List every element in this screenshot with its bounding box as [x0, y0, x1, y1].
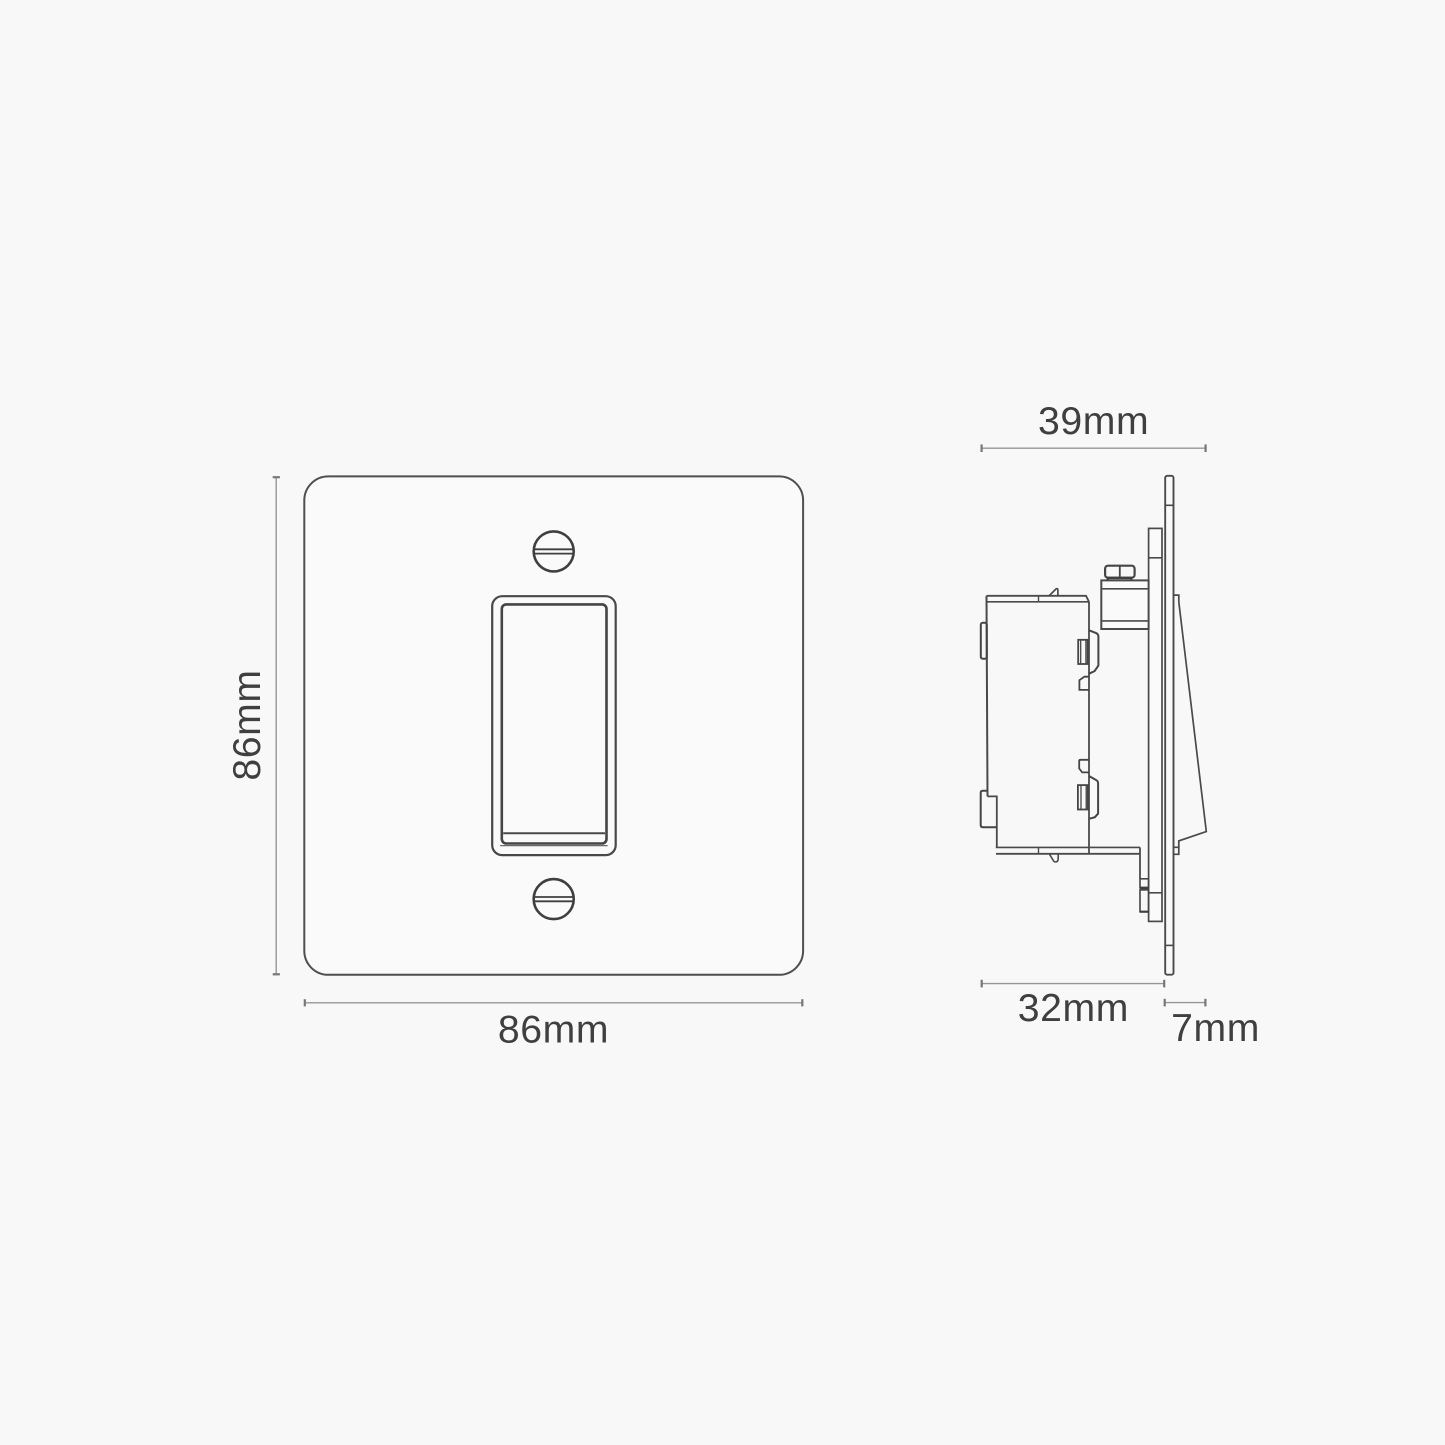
svg-text:86mm: 86mm [498, 1008, 609, 1051]
svg-text:39mm: 39mm [1038, 400, 1149, 443]
svg-text:7mm: 7mm [1171, 1007, 1260, 1050]
svg-text:86mm: 86mm [226, 669, 269, 780]
svg-text:32mm: 32mm [1018, 987, 1129, 1030]
